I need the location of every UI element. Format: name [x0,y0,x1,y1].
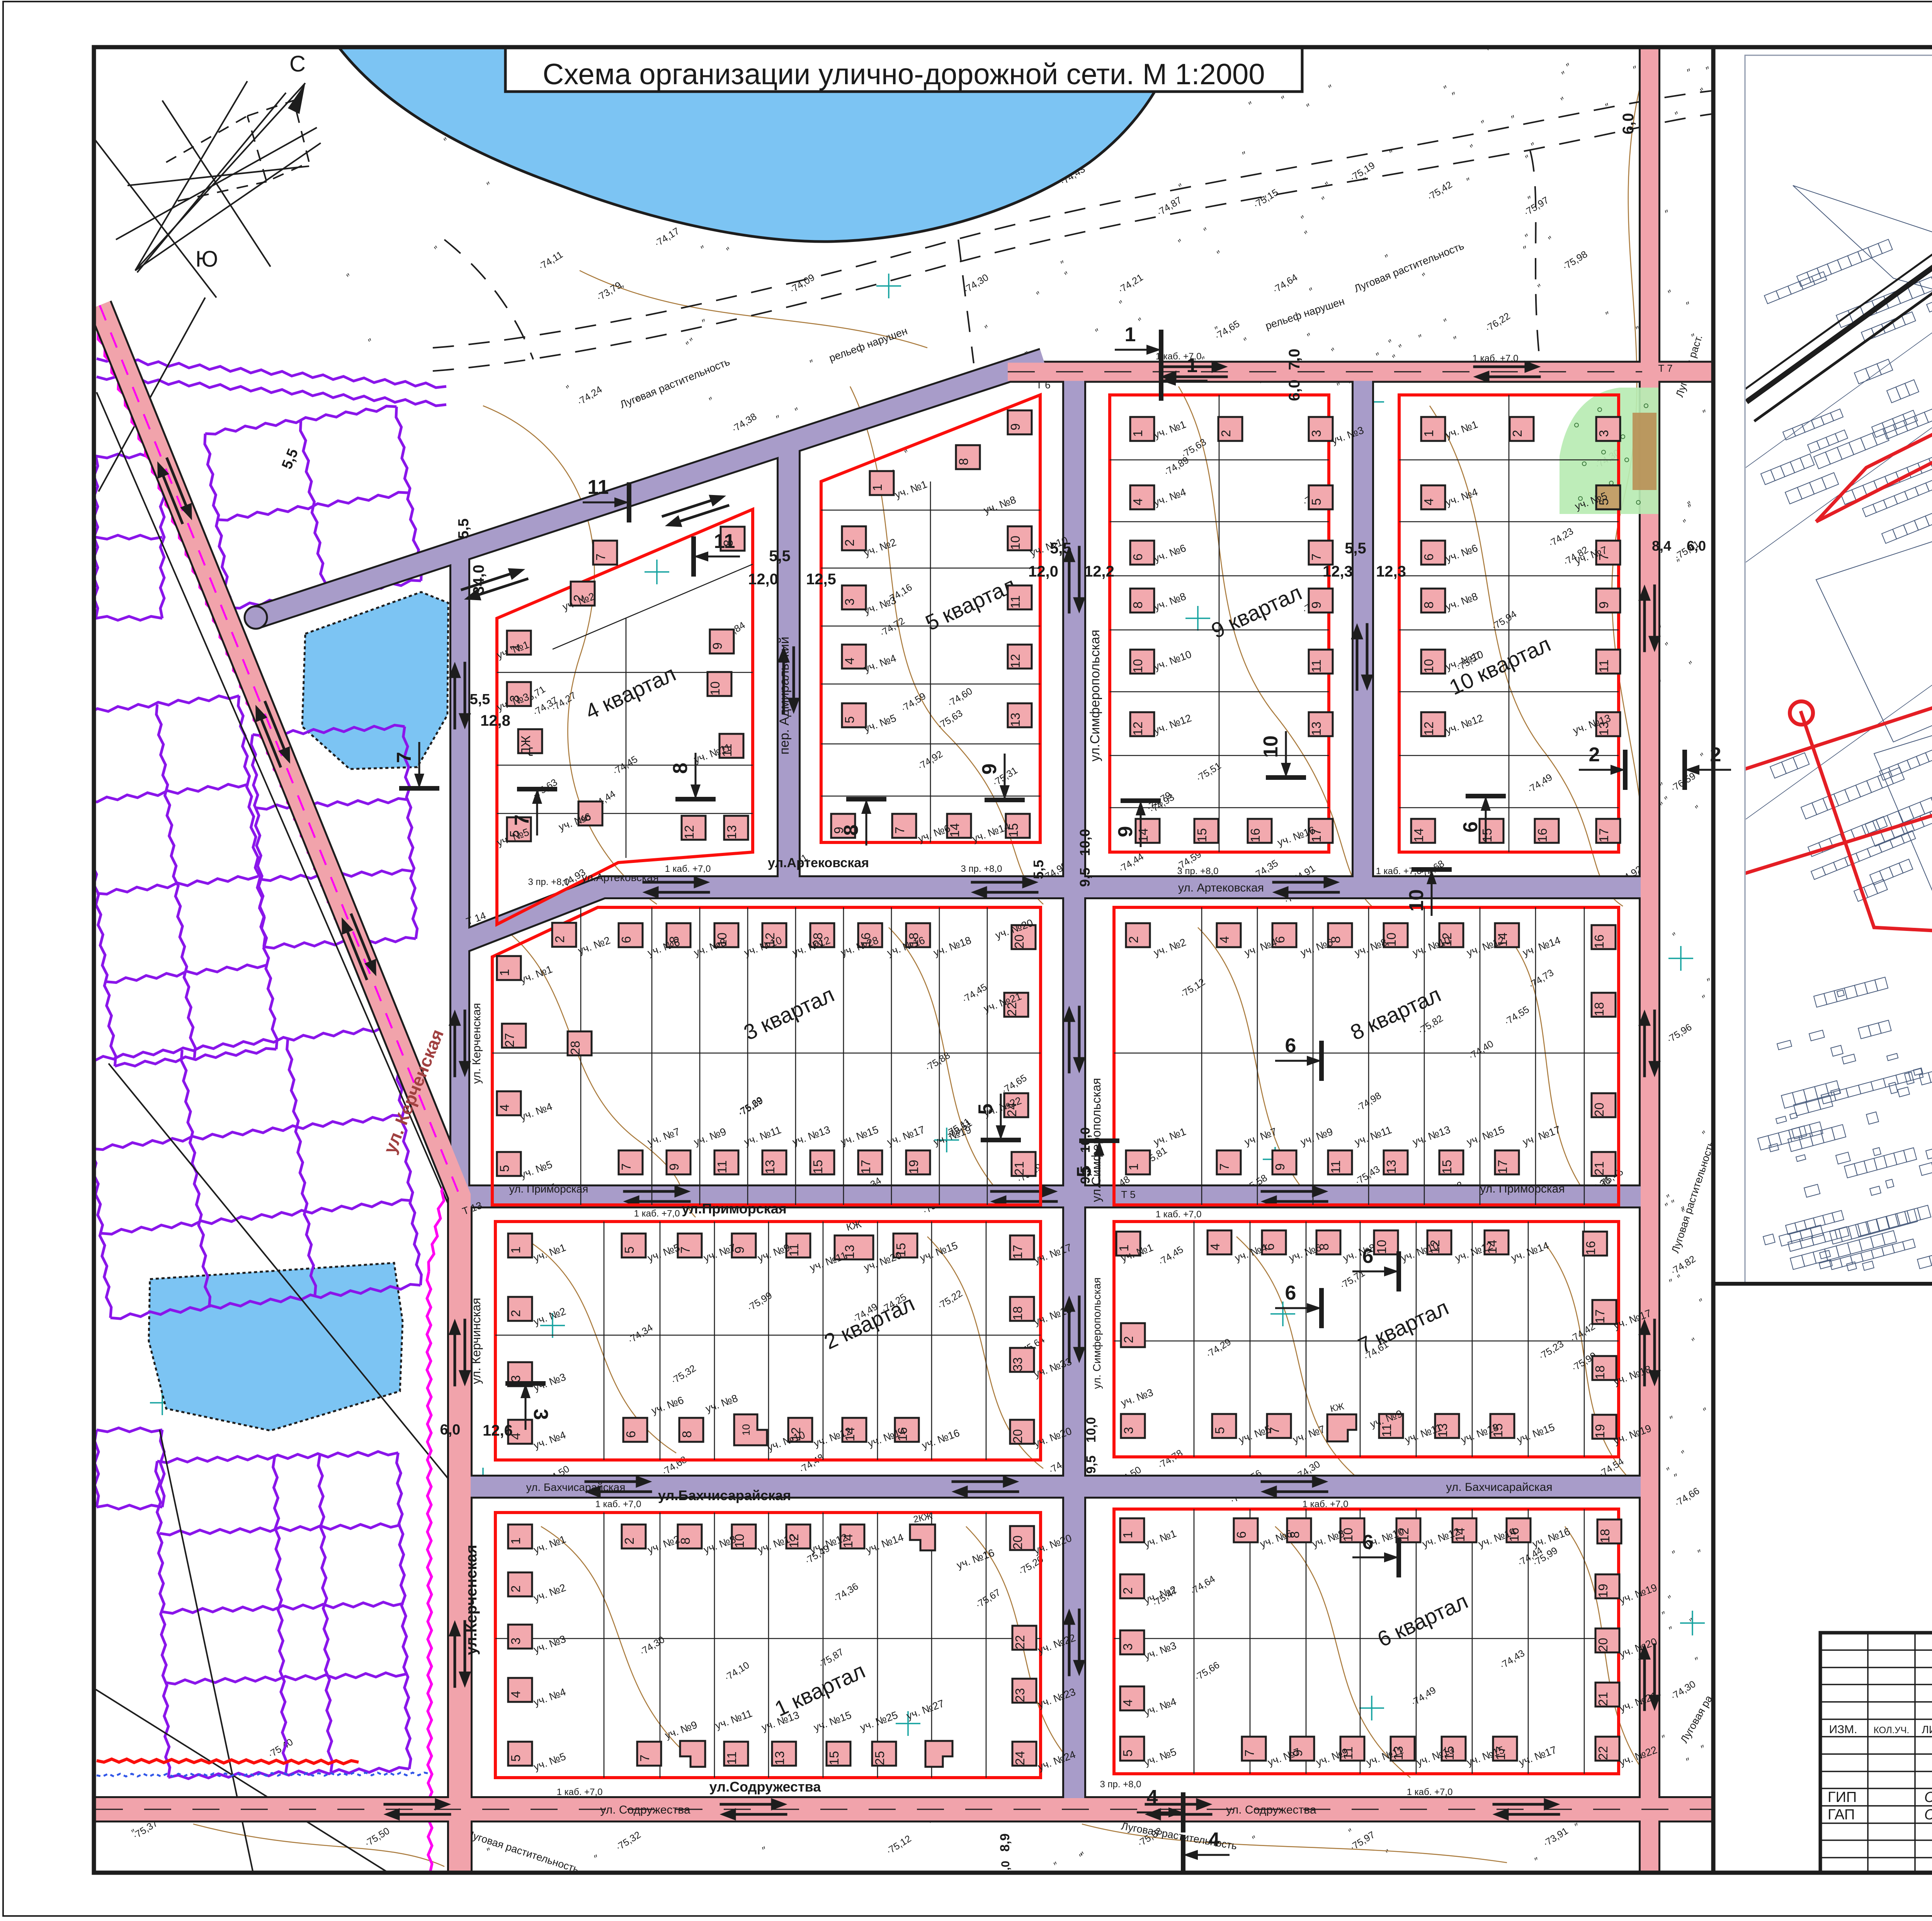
svg-text:11: 11 [1309,659,1323,672]
svg-text:19: 19 [906,1160,921,1174]
svg-text:12: 12 [1131,721,1145,736]
svg-text:8,4: 8,4 [1652,538,1671,554]
svg-text:10: 10 [708,681,722,696]
svg-text:9: 9 [978,764,1001,775]
svg-text:8: 8 [1131,601,1145,608]
svg-text:7,0: 7,0 [1286,349,1303,370]
svg-text:10,0: 10,0 [1084,1417,1099,1443]
svg-text:1: 1 [509,1246,523,1253]
svg-text:3 пр. +8,0: 3 пр. +8,0 [1177,866,1218,876]
svg-text:1 каб. +7,0: 1 каб. +7,0 [595,1499,641,1509]
svg-text:2: 2 [842,539,857,546]
svg-text:9: 9 [1273,1163,1287,1170]
svg-text:20: 20 [1010,1535,1025,1550]
svg-text:1 каб. +7,0: 1 каб. +7,0 [1376,866,1422,876]
svg-text:2: 2 [1126,936,1141,943]
svg-text:12: 12 [1008,654,1022,668]
svg-text:5: 5 [622,1246,636,1253]
svg-text:3: 3 [1597,430,1611,437]
svg-text:1: 1 [1131,430,1145,437]
svg-text:3: 3 [1121,1427,1136,1434]
svg-text:7: 7 [1309,553,1323,560]
svg-text:15: 15 [1480,828,1494,842]
svg-text:ул.Артековская: ул.Артековская [768,856,869,870]
svg-text:11: 11 [1328,1160,1343,1173]
svg-text:11: 11 [588,476,609,499]
svg-text:17: 17 [1597,828,1611,842]
svg-text:7: 7 [638,1754,652,1761]
svg-text:1 каб. +7,0: 1 каб. +7,0 [634,1208,680,1219]
svg-text:6: 6 [1285,1282,1296,1304]
svg-text:9: 9 [667,1163,681,1170]
svg-text:Т 7: Т 7 [1658,362,1673,374]
svg-text:6: 6 [619,936,633,943]
svg-text:12,3: 12,3 [1376,563,1406,580]
svg-text:3: 3 [1309,430,1323,437]
svg-text:5,5: 5,5 [769,548,791,565]
svg-text:ул. Содружества: ул. Содружества [600,1804,690,1816]
svg-text:20: 20 [1592,1103,1606,1117]
svg-text:10: 10 [740,1424,752,1436]
svg-text:2: 2 [1589,744,1600,766]
svg-text:6,0: 6,0 [1286,379,1303,401]
svg-text:ЛИСТ: ЛИСТ [1922,1724,1932,1736]
svg-text:7: 7 [594,553,608,560]
svg-text:5,5: 5,5 [470,691,490,708]
svg-text:12,2: 12,2 [1084,563,1114,580]
svg-text:13: 13 [1309,721,1323,736]
svg-text:16: 16 [1535,828,1549,842]
svg-text:10: 10 [1422,659,1436,673]
svg-text:9: 9 [1309,601,1323,608]
svg-text:4: 4 [842,657,857,664]
svg-text:ул. Бахчисарайская: ул. Бахчисарайская [526,1481,626,1493]
svg-text:6: 6 [1131,553,1145,560]
svg-text:12,0: 12,0 [748,571,778,588]
svg-text:6: 6 [1362,1245,1374,1268]
svg-text:ГИП: ГИП [1828,1789,1857,1805]
svg-text:10: 10 [1405,889,1428,912]
svg-text:7: 7 [393,752,415,763]
svg-text:2: 2 [509,1310,523,1317]
svg-text:4: 4 [1422,498,1436,505]
svg-text:Схема организации улично-дорож: Схема организации улично-дорожной сети. … [543,58,1265,91]
svg-text:12,6: 12,6 [483,1422,513,1439]
svg-text:11: 11 [1597,659,1611,672]
svg-text:4: 4 [1217,936,1231,943]
svg-text:5: 5 [1073,1166,1095,1177]
svg-text:6: 6 [1234,1531,1248,1538]
svg-text:1: 1 [1121,1531,1135,1538]
svg-text:9: 9 [1114,826,1137,837]
svg-text:1 каб. +7,0: 1 каб. +7,0 [1156,351,1202,362]
svg-text:13: 13 [1384,1160,1398,1174]
svg-text:1: 1 [1125,323,1136,346]
svg-text:Статных: Статных [1924,1807,1932,1823]
svg-text:4: 4 [1209,1829,1220,1851]
svg-text:4: 4 [497,1104,512,1111]
svg-text:21: 21 [1012,1161,1026,1176]
svg-text:7: 7 [893,827,907,834]
svg-text:15: 15 [1195,828,1209,842]
svg-text:8: 8 [669,763,692,774]
svg-text:КОЛ.УЧ.: КОЛ.УЧ. [1874,1725,1909,1736]
svg-text:2: 2 [509,1585,523,1592]
svg-text:5: 5 [497,1165,512,1172]
svg-text:С: С [289,51,306,77]
svg-text:6: 6 [1422,553,1436,560]
svg-text:ул.Керченская: ул.Керченская [463,1545,480,1655]
svg-text:21: 21 [1596,1692,1610,1706]
svg-text:10,0: 10,0 [1077,829,1093,856]
svg-text:6: 6 [1362,1531,1374,1553]
svg-text:12,8: 12,8 [480,712,510,729]
svg-text:12,0: 12,0 [1028,563,1058,580]
svg-text:Т 6: Т 6 [1036,379,1051,391]
svg-text:2: 2 [1219,430,1233,437]
svg-text:17: 17 [1593,1309,1607,1324]
svg-text:9,5: 9,5 [1084,1455,1099,1474]
svg-text:5,5: 5,5 [1345,540,1366,557]
svg-text:1 каб. +7,0: 1 каб. +7,0 [665,864,711,874]
svg-text:20: 20 [1010,1429,1025,1443]
svg-text:ул. Бахчисарайская: ул. Бахчисарайская [1446,1481,1552,1494]
svg-text:20: 20 [1596,1638,1610,1652]
svg-text:16: 16 [1583,1241,1598,1255]
svg-text:7: 7 [1217,1163,1231,1170]
svg-text:5: 5 [1213,1427,1227,1434]
svg-text:6: 6 [1285,1035,1296,1057]
svg-text:13: 13 [724,825,739,839]
svg-text:9: 9 [710,642,724,649]
svg-text:16: 16 [1592,934,1606,949]
svg-text:ул. Артековская: ул. Артековская [1178,881,1264,894]
svg-text:2: 2 [1121,1336,1136,1343]
svg-text:2: 2 [553,936,567,943]
svg-text:ул.Симферопольская: ул.Симферопольская [1088,630,1102,761]
svg-text:6,0: 6,0 [1687,538,1706,554]
svg-text:8: 8 [680,1431,694,1438]
svg-text:12: 12 [682,825,696,839]
svg-text:1 каб. +7,0: 1 каб. +7,0 [1156,1209,1202,1220]
svg-text:5,5: 5,5 [1050,540,1071,557]
svg-text:1 каб. +7,0: 1 каб. +7,0 [1407,1787,1453,1797]
svg-text:9: 9 [1597,601,1611,608]
svg-text:7: 7 [619,1163,633,1170]
svg-text:ул. Приморская: ул. Приморская [509,1183,588,1195]
svg-text:15: 15 [811,1160,825,1174]
svg-text:ГАП: ГАП [1828,1807,1855,1823]
svg-text:6,0: 6,0 [440,1422,461,1438]
svg-text:22: 22 [1596,1746,1610,1760]
svg-text:1: 1 [1126,1163,1141,1170]
svg-text:1 каб. +7,0: 1 каб. +7,0 [1303,1499,1349,1509]
svg-text:7: 7 [511,815,533,826]
svg-text:3: 3 [842,598,857,605]
svg-text:12,3: 12,3 [1323,563,1353,580]
svg-text:12: 12 [1422,721,1436,736]
svg-text:14: 14 [1412,828,1426,842]
svg-text:13: 13 [763,1160,777,1174]
svg-text:17: 17 [1495,1160,1510,1174]
svg-text:3: 3 [509,1637,523,1644]
svg-text:ул.Бахчисарайская: ул.Бахчисарайская [658,1487,791,1503]
svg-text:3: 3 [529,1409,552,1420]
svg-text:5: 5 [975,1104,997,1115]
svg-text:24: 24 [1013,1751,1027,1765]
svg-text:3 пр. +8,0: 3 пр. +8,0 [961,864,1002,874]
svg-text:3 пр. +8,0: 3 пр. +8,0 [1100,1779,1141,1790]
svg-text:15: 15 [1440,1160,1454,1174]
svg-text:4: 4 [1131,498,1145,505]
svg-text:1 каб. +7,0: 1 каб. +7,0 [557,1787,603,1797]
svg-text:25: 25 [872,1751,887,1765]
svg-text:1: 1 [509,1537,523,1544]
svg-text:Ю: Ю [196,247,218,272]
svg-text:ул.Содружества: ул.Содружества [709,1779,821,1795]
svg-text:13: 13 [1008,713,1022,727]
svg-text:5: 5 [1121,1749,1135,1756]
svg-text:11: 11 [714,530,735,553]
svg-text:28: 28 [568,1041,582,1055]
svg-text:пер. Адмиральский: пер. Адмиральский [777,636,792,754]
svg-text:8: 8 [1422,601,1436,608]
svg-text:1: 1 [870,484,884,491]
svg-text:6: 6 [1459,822,1482,833]
svg-text:23: 23 [1013,1688,1027,1702]
svg-text:18: 18 [1592,1002,1606,1016]
svg-text:7: 7 [1242,1749,1257,1756]
svg-text:18: 18 [1010,1306,1025,1320]
svg-text:18: 18 [1593,1365,1607,1380]
svg-text:10: 10 [1008,536,1022,550]
svg-text:ул. Керчинская: ул. Керчинская [469,1298,483,1384]
svg-text:8: 8 [840,825,862,836]
svg-text:8,9: 8,9 [998,1833,1012,1851]
svg-text:13: 13 [772,1751,787,1765]
svg-text:Т 5: Т 5 [1121,1189,1136,1200]
svg-text:ул. Керченская: ул. Керченская [470,1003,483,1084]
svg-text:5: 5 [509,1754,523,1761]
svg-text:10: 10 [1131,659,1145,673]
svg-text:18: 18 [1598,1529,1612,1543]
svg-text:9,5: 9,5 [1077,868,1093,887]
svg-text:ИЗМ.: ИЗМ. [1829,1723,1857,1736]
svg-text:5: 5 [1309,498,1323,505]
svg-text:2: 2 [1510,430,1524,437]
svg-text:1 каб. +7,0: 1 каб. +7,0 [1473,353,1519,364]
svg-text:ул. Приморская: ул. Приморская [1480,1183,1565,1195]
svg-text:17: 17 [859,1160,873,1174]
svg-text:ул. Симферопольская: ул. Симферопольская [1091,1278,1103,1389]
svg-text:34,0: 34,0 [470,565,487,595]
svg-text:ул. Содружества: ул. Содружества [1226,1804,1316,1816]
svg-text:4: 4 [1121,1699,1135,1706]
svg-text:11: 11 [1008,595,1022,608]
svg-text:3: 3 [509,1375,523,1382]
svg-text:5,5: 5,5 [456,519,472,539]
svg-text:6: 6 [624,1431,638,1438]
svg-text:4: 4 [509,1691,523,1698]
svg-text:2: 2 [1121,1587,1135,1594]
svg-text:27: 27 [502,1033,517,1047]
svg-text:19: 19 [1593,1424,1607,1438]
svg-text:22: 22 [1013,1635,1027,1649]
svg-text:17: 17 [1010,1245,1025,1259]
svg-text:12,5: 12,5 [806,571,836,588]
svg-text:3 пр. +8,0: 3 пр. +8,0 [528,877,569,887]
svg-text:2: 2 [622,1537,636,1544]
svg-text:5: 5 [842,716,857,723]
svg-text:Статных: Статных [1924,1789,1932,1805]
svg-text:ул.Артековская: ул.Артековская [582,871,659,883]
svg-text:ул.Приморская: ул.Приморская [682,1201,787,1217]
svg-text:3: 3 [1121,1643,1135,1650]
svg-text:21: 21 [1592,1161,1606,1176]
svg-text:20: 20 [1012,934,1026,949]
svg-text:8: 8 [956,458,971,465]
svg-text:33: 33 [1010,1357,1025,1371]
svg-text:5,5: 5,5 [1031,860,1046,879]
svg-text:10: 10 [1260,735,1282,758]
svg-text:15: 15 [827,1751,841,1765]
svg-text:ДЖ: ДЖ [519,735,533,756]
svg-text:1: 1 [497,969,512,976]
svg-text:4: 4 [1208,1243,1222,1250]
svg-text:16: 16 [1248,828,1262,842]
svg-text:9: 9 [1008,423,1022,430]
svg-text:14: 14 [1136,828,1150,842]
svg-text:19: 19 [1596,1584,1610,1598]
svg-text:4: 4 [1147,1786,1158,1809]
svg-text:11: 11 [715,1160,729,1173]
svg-text:6,0: 6,0 [1620,113,1637,134]
svg-text:1: 1 [1422,430,1436,437]
svg-text:11: 11 [724,1751,739,1764]
